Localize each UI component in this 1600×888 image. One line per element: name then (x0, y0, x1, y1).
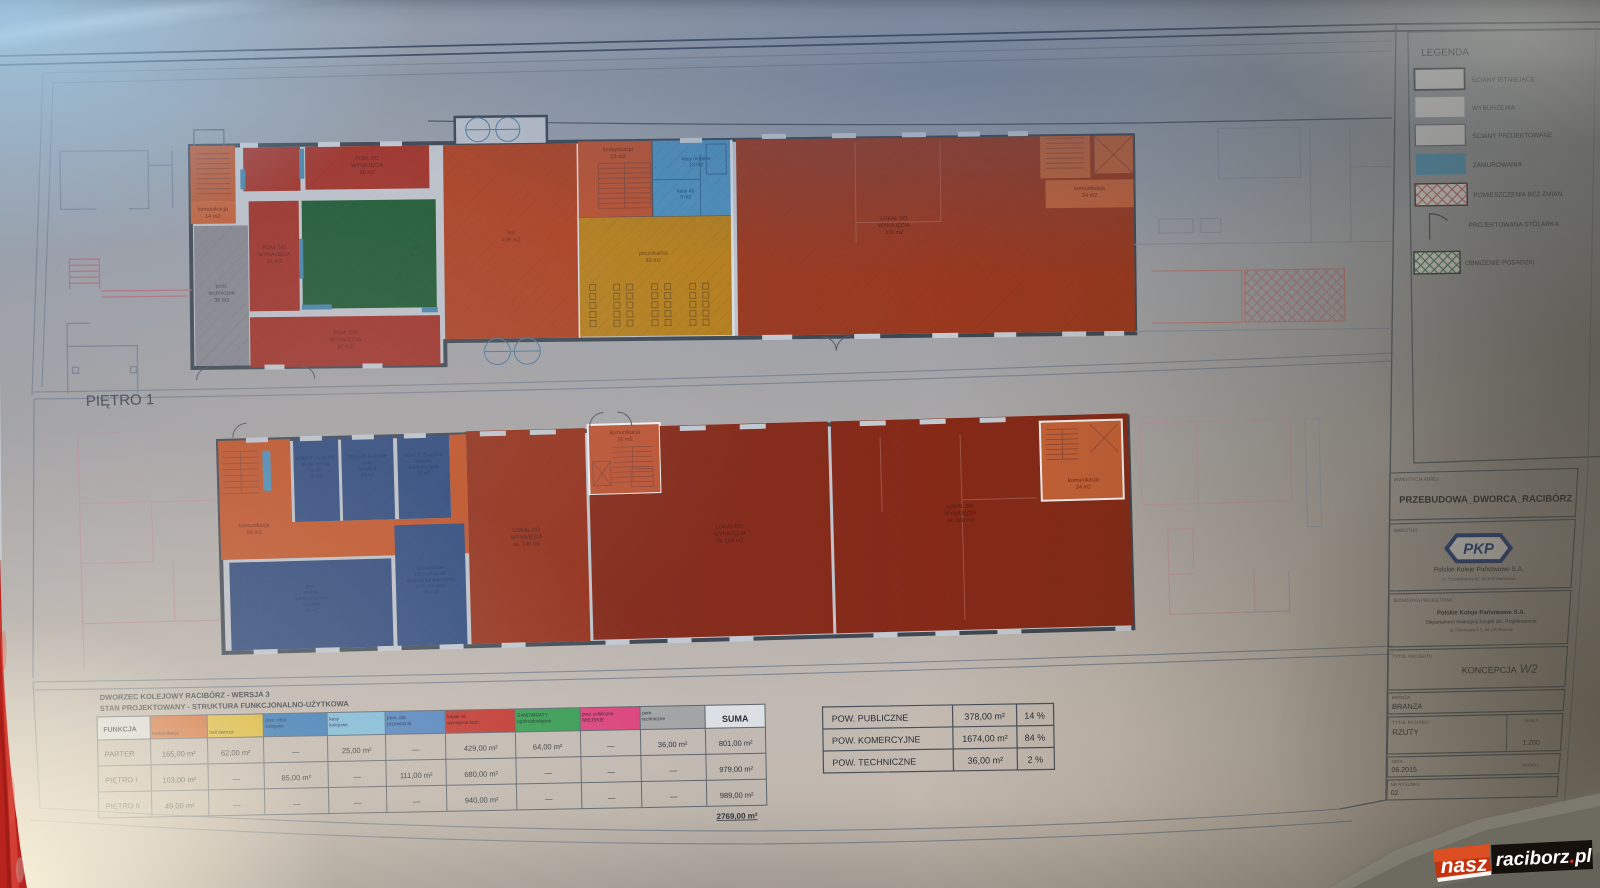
svg-text:raciborz.pl: raciborz.pl (1495, 846, 1593, 871)
svg-text:nasz: nasz (1440, 853, 1488, 878)
